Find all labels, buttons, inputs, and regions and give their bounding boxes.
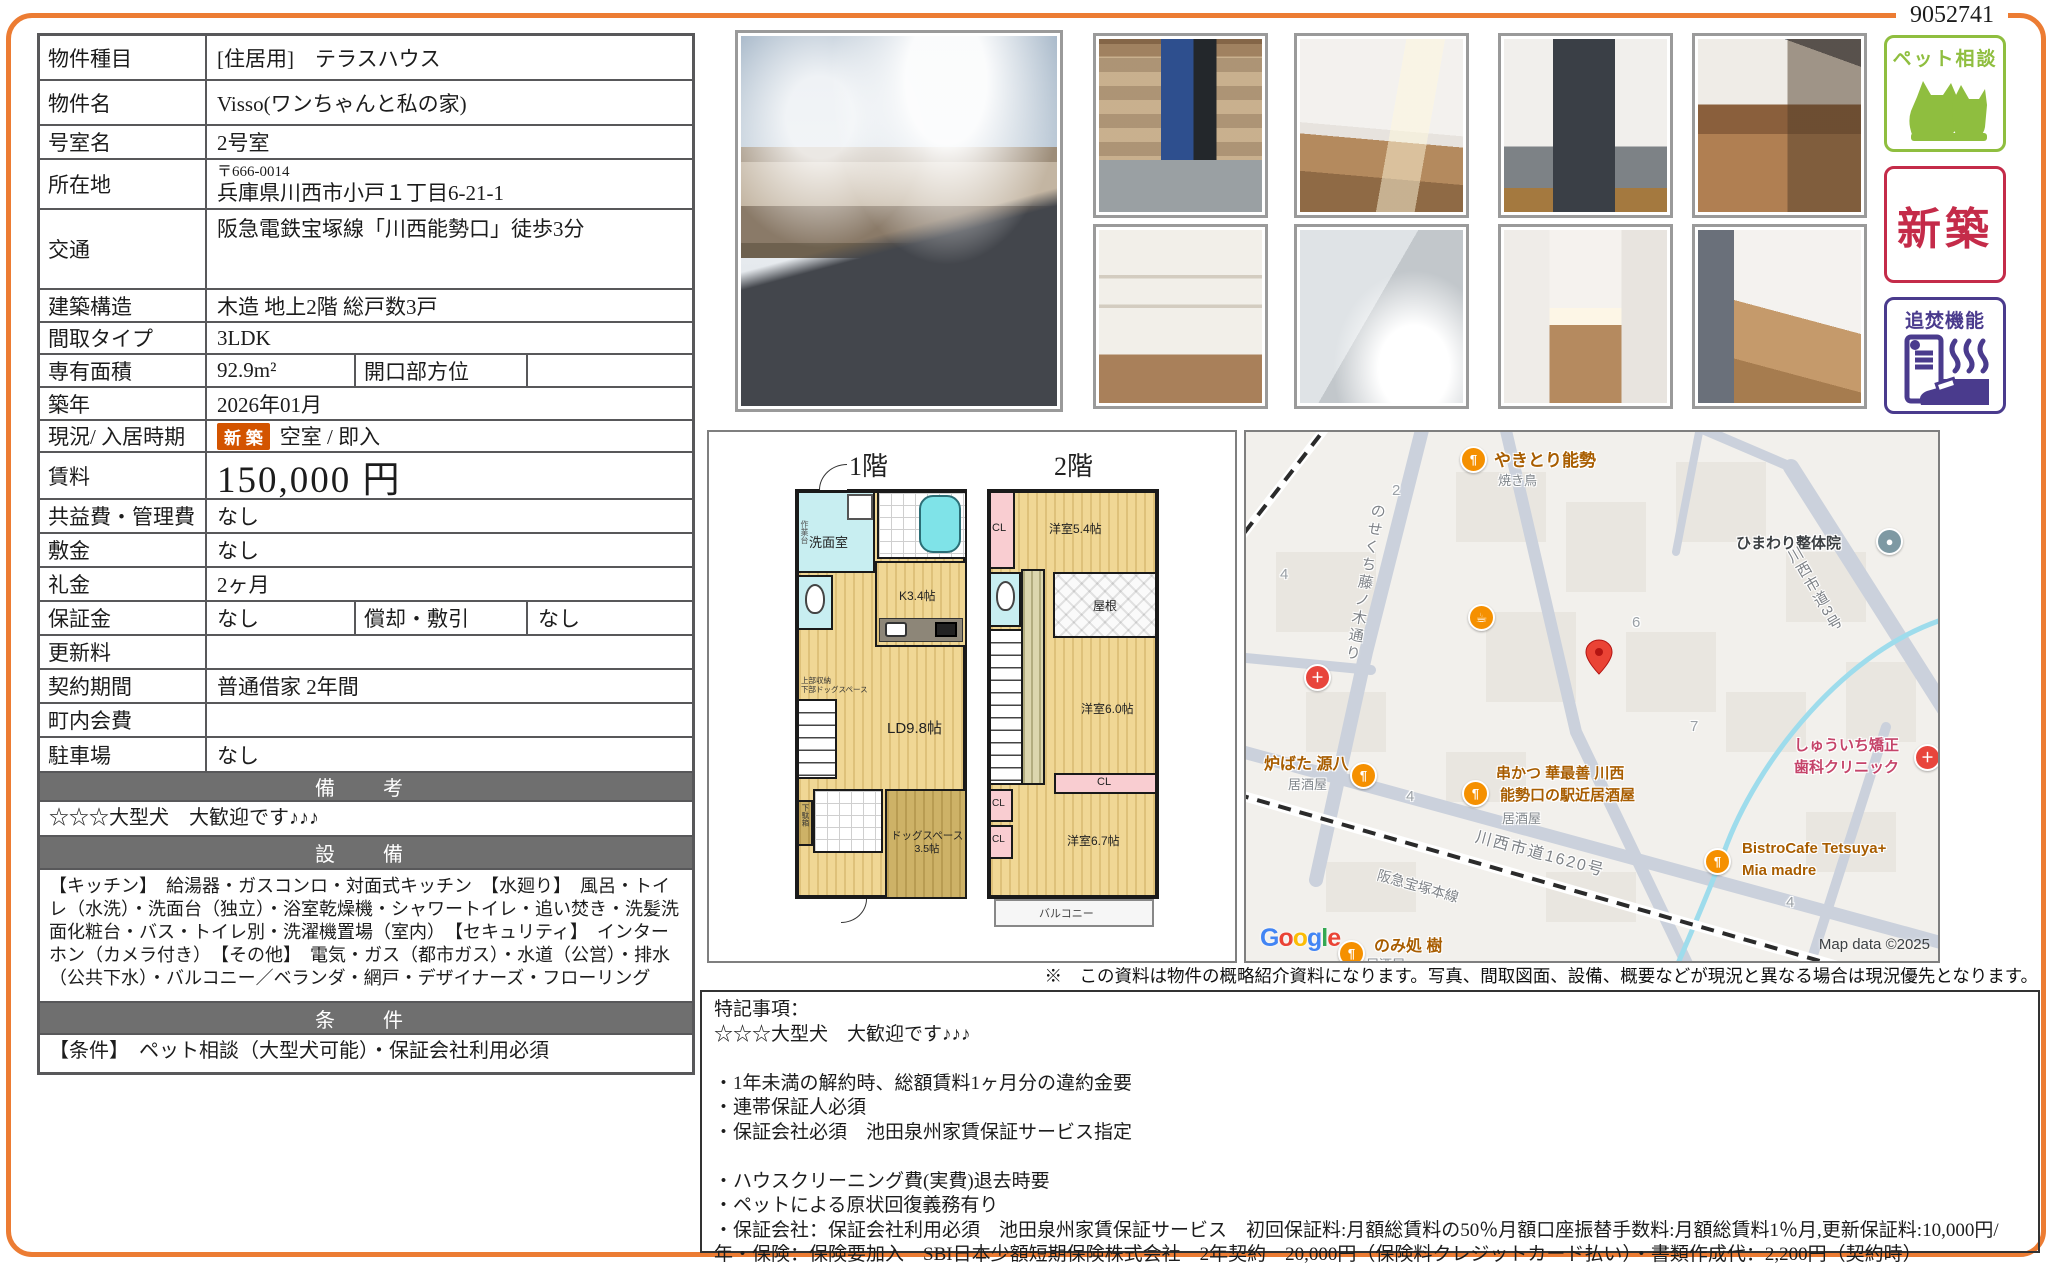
field-value-2 (528, 355, 692, 386)
address: 兵庫県川西市小戸１丁目6-21-1 (217, 181, 682, 205)
photo-living (1294, 33, 1469, 218)
photo-bathroom (1294, 224, 1469, 409)
restaurant-pin-kushikatsu: ¶ (1462, 780, 1489, 807)
photo-hallway-glass-door (1498, 33, 1673, 218)
map-copyright: Map data ©2025 (1819, 936, 1930, 953)
block-number: 4 (1406, 788, 1414, 805)
photo-entrance (1093, 33, 1268, 218)
row-common-fee: 共益費・管理費 なし (40, 500, 692, 534)
poi-bistro-2: Mia madre (1742, 862, 1816, 879)
dog-space-label: ドッグスペース3.5帖 (891, 830, 963, 856)
photo-room-window (1692, 224, 1867, 409)
entry-tile-area (813, 789, 883, 853)
field-value: なし (207, 738, 692, 771)
entrance-door-arc (819, 464, 847, 490)
field-value: Visso(ワンちゃんと私の家) (207, 81, 692, 124)
row-location: 所在地 〒666-0014 兵庫県川西市小戸１丁目6-21-1 (40, 160, 692, 210)
field-label: 間取タイプ (40, 323, 207, 353)
conditions-header: 条 件 (40, 1003, 692, 1035)
field-label: 礼金 (40, 568, 207, 600)
stairs-2f (989, 629, 1023, 785)
clinic-pin-himawari: ● (1876, 528, 1903, 555)
block-number: 7 (1690, 718, 1698, 735)
reheat-label: 追焚機能 (1905, 306, 1985, 333)
new-construction-large-badge: 新築 (1884, 166, 2006, 283)
field-value: 〒666-0014 兵庫県川西市小戸１丁目6-21-1 (207, 160, 692, 208)
cafe-pin: ☕ (1468, 604, 1495, 631)
row-key-money: 礼金 2ヶ月 (40, 568, 692, 602)
field-label: 号室名 (40, 126, 207, 158)
field-label: 専有面積 (40, 355, 207, 386)
remarks-header: 備 考 (40, 773, 692, 802)
poi-shuichi-2: 歯科クリニック (1794, 756, 1899, 777)
closet-left2-label: CL (992, 834, 1005, 845)
new-construction-label: 新築 (1897, 193, 1993, 257)
field-label: 物件名 (40, 81, 207, 124)
conditions-text: 【条件】 ペット相談（大型犬可能）・保証会社利用必須 (40, 1035, 692, 1072)
dogs-icon (1899, 71, 1991, 145)
floorplan-panel: 1階 2階 洗面室 作業台 K3.4帖 LD9.8帖 上部収納下部ドッグスペース… (707, 430, 1237, 963)
field-label: 契約期間 (40, 670, 207, 702)
special-notes-box: 特記事項： ☆☆☆大型犬 大歓迎です♪♪♪ ・1年未満の解約時、総額賃料1ヶ月分… (700, 990, 2040, 1253)
field-value: 阪急電鉄宝塚線「川西能勢口」徒歩3分 (207, 210, 692, 288)
field-value: 2ヶ月 (207, 568, 692, 600)
google-logo: Google (1260, 924, 1340, 953)
note-line: ・ハウスクリーニング費(実費)退去時要 (714, 1170, 2026, 1195)
field-label: 更新料 (40, 636, 207, 668)
restaurant-pin-robata: ¶ (1350, 762, 1377, 789)
restaurant-pin-bistro: ¶ (1704, 848, 1731, 875)
note-line: ・保証会社：保証会社利用必須 池田泉州家賃保証サービス 初回保証料:月額総賃料の… (714, 1219, 2026, 1268)
note-line (714, 1047, 2026, 1072)
washroom-label: 洗面室 (809, 532, 848, 551)
row-property-name: 物件名 Visso(ワンちゃんと私の家) (40, 81, 692, 126)
kitchen-sink (885, 622, 907, 637)
postal-code: 〒666-0014 (217, 164, 682, 181)
field-value: 92.9m² (207, 355, 354, 386)
poi-nomidokoro-sub: 居酒屋 (1366, 954, 1405, 963)
hospital-pin: ＋ (1304, 664, 1331, 691)
field-label: 保証金 (40, 602, 207, 634)
note-line (714, 1145, 2026, 1170)
storage-photo-image (1099, 230, 1262, 403)
reheat-function-badge: 追焚機能 (1884, 297, 2006, 414)
room60-label: 洋室6.0帖 (1081, 700, 1134, 717)
map-background (1246, 432, 1940, 963)
field-label: 町内会費 (40, 704, 207, 736)
row-parking: 駐車場 なし (40, 738, 692, 773)
field-label: 敷金 (40, 534, 207, 566)
field-value: なし (207, 534, 692, 566)
equipment-text: 【キッチン】 給湯器・ガスコンロ・対面式キッチン 【水廻り】 風呂・トイレ（水洗… (40, 870, 692, 1003)
poi-shuichi: しゅういち矯正 (1794, 734, 1899, 755)
block-number: 6 (1632, 614, 1640, 631)
poi-robata-sub: 居酒屋 (1288, 774, 1327, 793)
block-number: 2 (1392, 482, 1400, 499)
field-label: 建築構造 (40, 290, 207, 321)
hallway-photo-image (1504, 39, 1667, 212)
exterior-photo-image (741, 36, 1057, 406)
toilet-1f (805, 584, 825, 614)
closet-bar-label: CL (1097, 776, 1111, 788)
row-contract: 契約期間 普通借家 2年間 (40, 670, 692, 704)
field-label: 交通 (40, 210, 207, 288)
floor1-title: 1階 (849, 446, 888, 483)
photo-kitchen (1692, 33, 1867, 218)
page-number: 9052741 (1896, 2, 2008, 29)
field-label: 賃料 (40, 453, 207, 498)
row-layout-type: 間取タイプ 3LDK (40, 323, 692, 355)
field-value: 普通借家 2年間 (207, 670, 692, 702)
row-deposit: 敷金 なし (40, 534, 692, 568)
restaurant-pin-nomidokoro: ¶ (1338, 940, 1365, 963)
field-value-2: なし (528, 602, 692, 634)
field-value: 3LDK (207, 323, 692, 353)
living-label: LD9.8帖 (887, 717, 942, 738)
row-renewal-fee: 更新料 (40, 636, 692, 670)
door-arc-1f-bottom (841, 899, 867, 923)
poi-kushikatsu: 串かつ 華最善 川西 (1496, 762, 1624, 783)
poi-kushikatsu-sub: 居酒屋 (1502, 808, 1541, 827)
notes-title: 特記事項： (714, 998, 2026, 1023)
clinic-pin-shuichi: ＋ (1914, 744, 1940, 771)
storage-note: 上部収納下部ドッグスペース (801, 676, 868, 694)
poi-bistro: BistroCafe Tetsuya+ (1742, 840, 1886, 857)
photo-exterior (735, 30, 1063, 412)
field-value: [住居用] テラスハウス (207, 36, 692, 79)
field-label: 共益費・管理費 (40, 500, 207, 532)
corridor-photo-image (1504, 230, 1667, 403)
equipment-header: 設 備 (40, 837, 692, 870)
new-construction-badge: 新 築 (217, 423, 270, 450)
field-value: 2026年01月 (207, 388, 692, 419)
row-transport: 交通 阪急電鉄宝塚線「川西能勢口」徒歩3分 (40, 210, 692, 290)
photo-corridor (1498, 224, 1673, 409)
field-label-2: 開口部方位 (354, 355, 528, 386)
bathroom-photo-image (1300, 230, 1463, 403)
property-spec-table: 物件種目 [住居用] テラスハウス 物件名 Visso(ワンちゃんと私の家) 号… (37, 33, 695, 1075)
note-line: ・連帯保証人必須 (714, 1096, 2026, 1121)
floor2-title: 2階 (1054, 446, 1093, 483)
note-line: ・保証会社必須 池田泉州家賃保証サービス指定 (714, 1121, 2026, 1146)
room67-label: 洋室6.7帖 (1067, 832, 1120, 849)
washstand (847, 494, 873, 520)
remarks-text: ☆☆☆大型犬 大歓迎です♪♪♪ (40, 802, 692, 837)
row-room-name: 号室名 2号室 (40, 126, 692, 160)
room54-label: 洋室5.4帖 (1049, 520, 1102, 537)
stair-landing (1021, 569, 1045, 785)
poi-robata: 炉ばた 源八 (1264, 750, 1348, 774)
field-label-2: 償却・敷引 (354, 602, 528, 634)
pet-consult-badge: ペット相談 (1884, 35, 2006, 152)
field-value: なし (207, 500, 692, 532)
field-value: 2号室 (207, 126, 692, 158)
poi-yakitori: やきとり能勢 (1494, 446, 1596, 471)
row-guarantee: 保証金 なし 償却・敷引 なし (40, 602, 692, 636)
work-counter-label: 作業台 (799, 520, 810, 544)
restaurant-pin-yakitori: ¶ (1460, 446, 1487, 473)
note-line: ☆☆☆大型犬 大歓迎です♪♪♪ (714, 1023, 2026, 1048)
note-line: ・ペットによる原状回復義務有り (714, 1194, 2026, 1219)
row-rent: 賃料 150,000 円 (40, 453, 692, 500)
bathtub (919, 495, 961, 553)
entrance-photo-image (1099, 39, 1262, 212)
field-value: 木造 地上2階 総戸数3戸 (207, 290, 692, 321)
poi-yakitori-sub: 焼き鳥 (1498, 470, 1537, 489)
disclaimer-note: ※ この資料は物件の概略紹介資料になります。写真、間取図面、設備、概要などが現況… (1045, 963, 2038, 988)
status-text: 空室 / 即入 (280, 421, 380, 451)
field-value (207, 704, 692, 736)
kitchen-label: K3.4帖 (899, 587, 936, 604)
field-value (207, 636, 692, 668)
field-label: 物件種目 (40, 36, 207, 79)
rent-amount: 150,000 円 (207, 453, 692, 498)
closet-left1-label: CL (992, 798, 1005, 809)
closet-label: CL (992, 522, 1006, 534)
field-label: 築年 (40, 388, 207, 419)
map-panel: ¶ ● ☕ ＋ ¶ ¶ ＋ ¶ ¶ やきとり能勢 焼き鳥 2 のせくち藤ノ木通り… (1244, 430, 1940, 963)
room-photo-image (1698, 230, 1861, 403)
field-label: 所在地 (40, 160, 207, 208)
note-line: ・1年未満の解約時、総額賃料1ヶ月分の違約金要 (714, 1072, 2026, 1097)
field-label: 駐車場 (40, 738, 207, 771)
row-property-type: 物件種目 [住居用] テラスハウス (40, 36, 692, 81)
field-value: なし (207, 602, 354, 634)
row-structure: 建築構造 木造 地上2階 総戸数3戸 (40, 290, 692, 323)
field-label: 現況/ 入居時期 (40, 421, 207, 451)
living-photo-image (1300, 39, 1463, 212)
stairs-1f (797, 699, 837, 779)
stove (935, 622, 957, 637)
roof-label: 屋根 (1093, 597, 1117, 614)
field-value: 新 築 空室 / 即入 (207, 421, 692, 451)
photo-storage (1093, 224, 1268, 409)
block-number: 4 (1786, 894, 1794, 911)
toilet-2f (996, 581, 1015, 611)
water-heater-icon (1897, 333, 1993, 409)
row-area: 専有面積 92.9m² 開口部方位 (40, 355, 692, 388)
row-built: 築年 2026年01月 (40, 388, 692, 421)
kitchen-photo-image (1698, 39, 1861, 212)
row-neighborhood-fee: 町内会費 (40, 704, 692, 738)
block-number: 4 (1280, 566, 1288, 583)
poi-nomidokoro: のみ処 樹 (1374, 932, 1442, 956)
pet-consult-label: ペット相談 (1892, 44, 1997, 71)
balcony-label: バルコニー (1039, 905, 1094, 921)
shoe-box-label: 下駄箱 (800, 804, 811, 827)
poi-kushikatsu-2: 能勢口の駅近居酒屋 (1500, 784, 1635, 805)
